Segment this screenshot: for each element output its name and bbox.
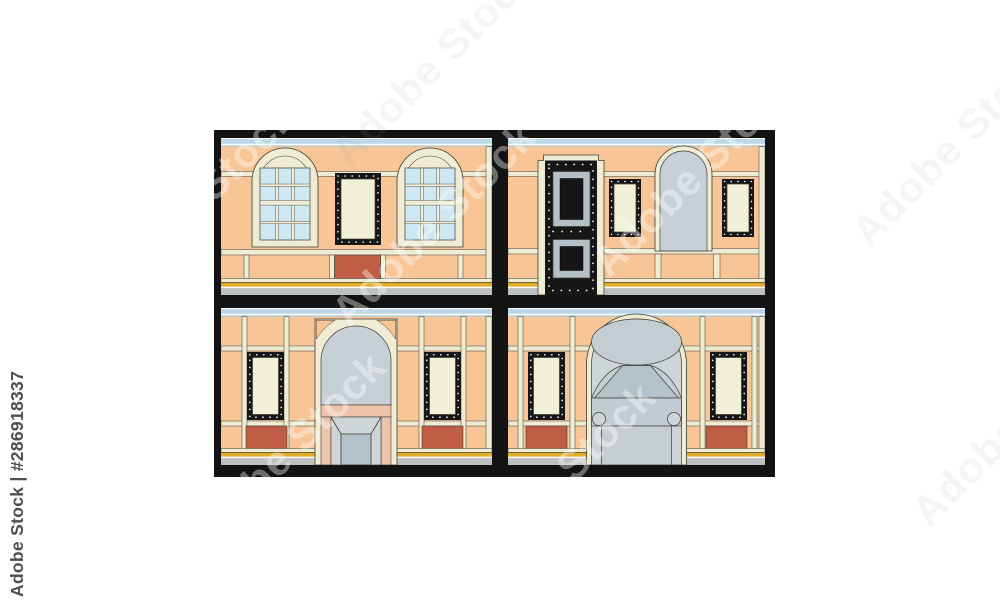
- arched-niche: [655, 146, 712, 251]
- arch-glazing: [321, 326, 391, 405]
- grand-arched-entrance: [587, 314, 687, 465]
- studded-window-left: [609, 179, 641, 237]
- stock-image-canvas: Adobe Stock Adobe Stock Adobe Stock Adob…: [0, 0, 1000, 600]
- studded-window-center: [335, 173, 381, 245]
- facade-panel-top-right: [508, 138, 765, 295]
- entry-door: [341, 434, 371, 465]
- facade-panel-bottom-right: [508, 308, 765, 465]
- watermark-ghost-text: Adobe Stock: [842, 32, 1000, 255]
- entrance-dome: [592, 319, 682, 365]
- watermark-ghost-text: Adobe Stock: [902, 312, 1000, 535]
- jamb-right: [381, 417, 391, 465]
- porthole-right: [668, 413, 681, 426]
- cornice-strip: [508, 138, 765, 147]
- edge-pilaster: [486, 147, 492, 283]
- facade-panel-bottom-left: [221, 308, 492, 465]
- arched-window-right: [397, 148, 463, 247]
- entrance-door: [602, 426, 672, 465]
- studded-window-right: [710, 352, 747, 420]
- facade-grid-frame: [214, 130, 775, 477]
- cornice-strip: [221, 308, 492, 317]
- cornice-strip: [221, 138, 492, 147]
- lower-trim-band: [221, 250, 492, 256]
- watermark-vertical-label: Adobe Stock | #286918337: [7, 297, 28, 597]
- edge-pilaster: [759, 147, 765, 283]
- studded-window-left: [528, 352, 565, 420]
- studded-window-left: [247, 352, 284, 420]
- facade-panel-top-left: [221, 138, 492, 295]
- studded-window-right: [722, 179, 754, 237]
- pink-lintel: [321, 405, 391, 417]
- arched-window-left: [252, 148, 318, 247]
- red-wall-panel: [335, 255, 381, 279]
- black-paneled-door: [538, 155, 604, 295]
- porthole-left: [593, 413, 606, 426]
- base-strips: [221, 279, 492, 296]
- studded-window-right: [424, 352, 461, 420]
- jamb-left: [321, 417, 331, 465]
- arched-entrance: [315, 319, 397, 465]
